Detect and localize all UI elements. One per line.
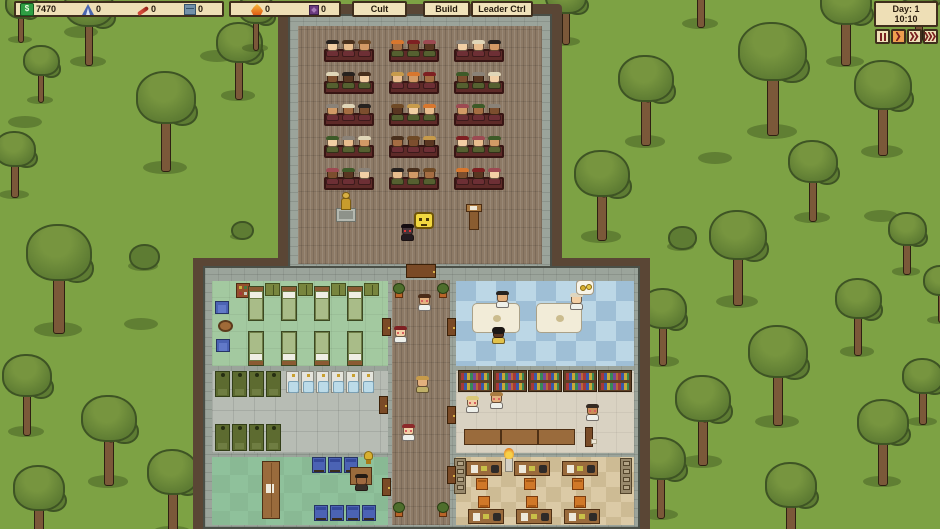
lectern-page	[591, 439, 597, 444]
desk	[538, 429, 575, 445]
typewriter	[587, 465, 595, 473]
door[interactable]	[382, 318, 391, 336]
shower-tray	[252, 389, 261, 395]
door[interactable]	[447, 318, 456, 336]
shower-stall	[232, 424, 247, 451]
bed-board	[315, 287, 329, 291]
person-body	[488, 50, 501, 57]
play-button[interactable]	[891, 29, 906, 44]
congregation-member	[358, 136, 371, 153]
congregation-member	[407, 40, 420, 57]
resource-runes: 0	[309, 4, 326, 15]
chair-legs	[364, 518, 374, 520]
tree-canopy	[618, 55, 673, 103]
office-desk	[562, 461, 598, 476]
shower-stall	[215, 371, 230, 397]
person-body	[423, 50, 436, 57]
congregation-member	[342, 72, 355, 89]
person-hair	[490, 392, 503, 396]
toilet-button	[352, 374, 355, 377]
rune-gem	[311, 7, 317, 13]
shower-tray	[269, 389, 278, 395]
congregation-member	[472, 168, 485, 185]
person-body	[391, 114, 404, 121]
person-body	[407, 114, 420, 121]
grass-shadow-blob	[698, 152, 732, 164]
waiting-chair	[312, 457, 326, 473]
person-hair	[466, 396, 479, 400]
shower-tray	[252, 443, 261, 449]
person-hair	[391, 72, 404, 76]
person-eye	[409, 230, 411, 232]
toilet-button	[307, 374, 310, 377]
pause-bar	[884, 33, 886, 41]
resource-flame: 0	[251, 4, 270, 15]
waiting-chair	[330, 505, 344, 521]
tree-canopy	[23, 45, 59, 77]
reader	[490, 392, 503, 409]
bed-board	[249, 287, 263, 291]
reader	[466, 396, 479, 413]
tree-trunk	[773, 372, 783, 427]
tree-trunk	[53, 275, 64, 335]
build-button[interactable]: Build	[423, 1, 470, 17]
person-body	[342, 178, 355, 185]
pause-button[interactable]	[875, 29, 890, 44]
person-hair	[472, 136, 485, 140]
person-hair	[423, 40, 436, 44]
office-chair	[478, 496, 490, 508]
person-hair	[391, 168, 404, 172]
door[interactable]	[406, 264, 436, 278]
papers	[473, 513, 480, 521]
office-chair	[572, 478, 584, 490]
cabinet-drawer	[457, 477, 464, 482]
toilet-bowl	[348, 381, 359, 393]
bed	[347, 286, 363, 321]
table-emblem	[493, 315, 501, 322]
person-body	[423, 82, 436, 89]
person-body	[355, 484, 368, 491]
toilet-button	[322, 374, 325, 377]
tents-value: 0	[96, 4, 101, 15]
congregation-member	[326, 104, 339, 121]
tree-canopy	[147, 449, 200, 494]
desk-item	[483, 514, 489, 519]
chair-back	[574, 480, 582, 482]
cult-leader[interactable]	[401, 224, 414, 241]
bed	[248, 286, 264, 321]
tree-canopy	[857, 399, 910, 444]
wardrobe-split	[306, 285, 307, 296]
cabinet-drawer	[623, 469, 630, 474]
plant-leaves	[393, 502, 405, 513]
chair-legs	[332, 518, 342, 520]
person-body	[472, 146, 485, 153]
books-row	[531, 383, 559, 390]
congregation-member	[407, 136, 420, 153]
congregation-member	[326, 136, 339, 153]
door-handle	[388, 327, 390, 329]
bookshelf	[493, 370, 527, 392]
pause-bar	[880, 33, 882, 41]
person-body	[423, 146, 436, 153]
bed-board	[249, 361, 263, 365]
tree-trunk	[641, 96, 651, 146]
congregation-member	[423, 136, 436, 153]
person-hair	[492, 327, 505, 334]
bed-pillow	[283, 292, 295, 298]
bush	[231, 221, 254, 240]
typewriter	[539, 465, 547, 473]
follower	[402, 424, 415, 441]
congregation-member	[342, 104, 355, 121]
person-hair	[488, 136, 501, 140]
bookshelf	[458, 370, 492, 392]
congregation-member	[488, 104, 501, 121]
bed-board	[282, 287, 296, 291]
person-body	[342, 146, 355, 153]
crate-icon	[184, 4, 196, 15]
congregation-member	[326, 72, 339, 89]
person-eye	[410, 430, 412, 432]
books-row	[601, 383, 629, 390]
armchair	[215, 301, 229, 314]
door[interactable]	[382, 478, 391, 496]
shower-head	[272, 373, 276, 377]
chair-back	[346, 459, 356, 462]
desk-item	[579, 514, 585, 519]
corridor-floor	[392, 280, 450, 525]
bubble-mouth	[421, 224, 427, 226]
cabinet-drawer	[623, 477, 630, 482]
person-hair	[407, 40, 420, 44]
tree-canopy	[835, 278, 882, 319]
person-body	[391, 82, 404, 89]
tree-canopy	[2, 354, 52, 397]
door-handle	[388, 487, 390, 489]
door[interactable]	[379, 396, 388, 414]
leader-ctrl-button[interactable]: Leader Ctrl	[471, 1, 533, 17]
door[interactable]	[447, 466, 456, 484]
person-hair	[586, 404, 599, 408]
person-body	[423, 178, 436, 185]
bed-blanket	[349, 333, 361, 353]
person-body	[358, 50, 371, 57]
cabinet-drawer	[623, 461, 630, 466]
shower-stall	[232, 371, 247, 397]
bed-blanket	[250, 333, 262, 353]
person-hair	[407, 136, 420, 140]
tree-trunk	[168, 489, 177, 529]
bed	[248, 331, 264, 366]
person-hair	[391, 104, 404, 108]
person-hair	[418, 294, 431, 298]
bed-pillow	[316, 354, 328, 360]
congregation-member	[342, 40, 355, 57]
person-body	[472, 114, 485, 121]
person-body	[416, 386, 429, 393]
congregation-member	[407, 72, 420, 89]
person-hair	[394, 326, 407, 330]
torch-statue	[502, 448, 516, 472]
librarian	[586, 404, 599, 421]
doctor	[496, 291, 509, 308]
person-hair	[342, 136, 355, 140]
tree-canopy	[81, 395, 136, 443]
person-body	[472, 50, 485, 57]
chair-legs	[314, 470, 324, 472]
person-body	[456, 146, 469, 153]
person-hair	[407, 168, 420, 172]
golden-statue	[336, 192, 356, 222]
shower-stall	[215, 424, 230, 451]
person-body	[326, 114, 339, 121]
door[interactable]	[447, 406, 456, 424]
office-desk	[466, 461, 502, 476]
flame-value: 0	[265, 4, 270, 15]
bed-pillow	[250, 292, 262, 298]
congregation-member	[472, 72, 485, 89]
person-body	[466, 406, 479, 413]
tree-canopy	[675, 375, 730, 423]
person-hair	[391, 40, 404, 44]
counter-panel	[266, 484, 274, 493]
time-panel: Day: 1 10:10	[874, 1, 938, 44]
person-body	[456, 178, 469, 185]
person-hair	[355, 474, 368, 478]
cabinet-drawer	[457, 461, 464, 466]
gold-trophy	[363, 451, 374, 464]
tree-canopy	[26, 224, 92, 281]
fastest-forward-button[interactable]	[923, 29, 938, 44]
tree-trunk	[841, 19, 850, 66]
person-body	[456, 114, 469, 121]
typewriter	[589, 513, 597, 521]
waiting-chair	[346, 505, 360, 521]
person-body	[472, 82, 485, 89]
pens-value: 0	[151, 4, 156, 15]
person-eye	[498, 398, 500, 400]
tree-trunk	[104, 436, 114, 486]
desk-item	[481, 466, 487, 471]
person-body	[423, 114, 436, 121]
person-hair	[488, 168, 501, 172]
congregation-member	[456, 40, 469, 57]
person-hair	[488, 40, 501, 44]
potted-plant	[437, 283, 449, 298]
bed	[314, 331, 330, 366]
time-box: Day: 1 10:10	[874, 1, 938, 27]
congregation-member	[472, 104, 485, 121]
person-body	[407, 50, 420, 57]
person-hair	[326, 136, 339, 140]
person-hair	[342, 104, 355, 108]
armchair	[216, 339, 230, 352]
congregation-member	[423, 168, 436, 185]
chair-legs	[348, 518, 358, 520]
congregation-member	[472, 136, 485, 153]
person-body	[391, 50, 404, 57]
doctor	[570, 293, 583, 310]
person-hair	[423, 136, 436, 140]
person-hair	[456, 72, 469, 76]
tree-canopy	[574, 150, 629, 198]
armchair-seat	[219, 343, 227, 351]
shower-tray	[235, 443, 244, 449]
door-handle	[453, 327, 455, 329]
person-eye	[589, 410, 591, 412]
bed	[347, 331, 363, 366]
person-body	[472, 178, 485, 185]
person-hair	[407, 104, 420, 108]
crates-value: 0	[198, 4, 203, 15]
congregation-member	[488, 40, 501, 57]
shelf-item	[244, 292, 247, 295]
person-body	[391, 146, 404, 153]
person-body	[342, 50, 355, 57]
person-body	[488, 146, 501, 153]
typewriter	[491, 465, 499, 473]
person-hair	[472, 40, 485, 44]
lectern-body	[585, 427, 593, 447]
congregation-member	[391, 72, 404, 89]
person-eye	[421, 300, 423, 302]
desk-item	[529, 466, 535, 471]
shelf-item	[239, 292, 242, 295]
tree-canopy	[748, 325, 809, 377]
door-handle	[385, 405, 387, 407]
person-hair	[326, 40, 339, 44]
bookshelf	[563, 370, 597, 392]
ff-chevron	[910, 32, 915, 41]
tree-trunk	[235, 58, 243, 100]
shelf-item	[239, 286, 242, 289]
bush	[129, 244, 160, 270]
bed-blanket	[316, 299, 328, 319]
plant-leaves	[437, 502, 449, 513]
bed	[281, 286, 297, 321]
congregation-member	[456, 72, 469, 89]
wardrobe	[364, 283, 379, 296]
person-hair	[342, 72, 355, 76]
cabinet-drawer	[457, 469, 464, 474]
bed-pillow	[250, 354, 262, 360]
bed-blanket	[283, 299, 295, 319]
person-body	[490, 402, 503, 409]
tree-canopy	[788, 140, 838, 183]
person-body	[407, 146, 420, 153]
fast-forward-button[interactable]	[907, 29, 922, 44]
bed-pillow	[349, 354, 361, 360]
money-value: 7470	[36, 4, 56, 15]
person-eye	[469, 402, 471, 404]
shower-tray	[269, 443, 278, 449]
congregation-member	[358, 40, 371, 57]
file-cabinet	[620, 458, 632, 494]
person-body	[488, 82, 501, 89]
person-eye	[594, 410, 596, 412]
congregation-member	[358, 168, 371, 185]
office-desk	[516, 509, 552, 524]
tree-trunk	[697, 0, 706, 28]
person-body	[456, 82, 469, 89]
bed-blanket	[316, 333, 328, 353]
chair-back	[316, 507, 326, 510]
chair-back	[478, 480, 486, 482]
play-chevron	[896, 32, 901, 41]
runes-value: 0	[321, 4, 326, 15]
person-eye	[402, 332, 404, 334]
waiting-chair	[314, 505, 328, 521]
congregation-member	[488, 136, 501, 153]
office-chair	[524, 478, 536, 490]
person-eye	[405, 430, 407, 432]
toilet-button	[337, 374, 340, 377]
shower-head	[255, 373, 259, 377]
chair-legs	[330, 470, 340, 472]
person-eye	[426, 300, 428, 302]
books-row	[601, 373, 629, 380]
person-body	[391, 178, 404, 185]
congregation-member	[407, 104, 420, 121]
tree-canopy	[136, 71, 197, 123]
toilet-bowl	[288, 381, 299, 393]
toilet	[316, 371, 329, 393]
congregation-member	[391, 136, 404, 153]
wardrobe-split	[339, 285, 340, 296]
tree-trunk	[11, 161, 19, 198]
resource-panel-primary: $ 7470 0 0 0	[14, 1, 224, 17]
bubble-coin	[586, 284, 592, 290]
bed	[314, 286, 330, 321]
congregation-member	[407, 168, 420, 185]
person-body	[488, 178, 501, 185]
counter-line	[271, 463, 272, 517]
tree-trunk	[767, 74, 779, 136]
person-body	[586, 414, 599, 421]
wardrobe	[265, 283, 280, 296]
grass-shadow-blob	[124, 318, 158, 330]
toilet	[301, 371, 314, 393]
person-eye	[404, 230, 406, 232]
papers	[569, 513, 576, 521]
person-body	[326, 82, 339, 89]
person-hair	[391, 136, 404, 140]
shelf-item	[244, 286, 247, 289]
door-handle	[433, 271, 435, 273]
person-hair	[326, 168, 339, 172]
tent-icon	[82, 4, 94, 15]
tree-canopy	[738, 22, 807, 81]
cult-button[interactable]: Cult	[352, 1, 407, 17]
tree-trunk	[698, 416, 708, 466]
person-hair	[472, 72, 485, 76]
toilet	[331, 371, 344, 393]
person-hair	[456, 168, 469, 172]
papers	[521, 513, 528, 521]
toilet-bowl	[303, 381, 314, 393]
books-row	[461, 383, 489, 390]
person-hair	[416, 376, 429, 380]
patient	[492, 327, 505, 344]
cabinet-drawer	[623, 485, 630, 490]
cabinet-drawer	[457, 485, 464, 490]
plant-leaves	[393, 283, 405, 294]
shower-head	[238, 373, 242, 377]
person-body	[407, 178, 420, 185]
toilet-button	[367, 374, 370, 377]
